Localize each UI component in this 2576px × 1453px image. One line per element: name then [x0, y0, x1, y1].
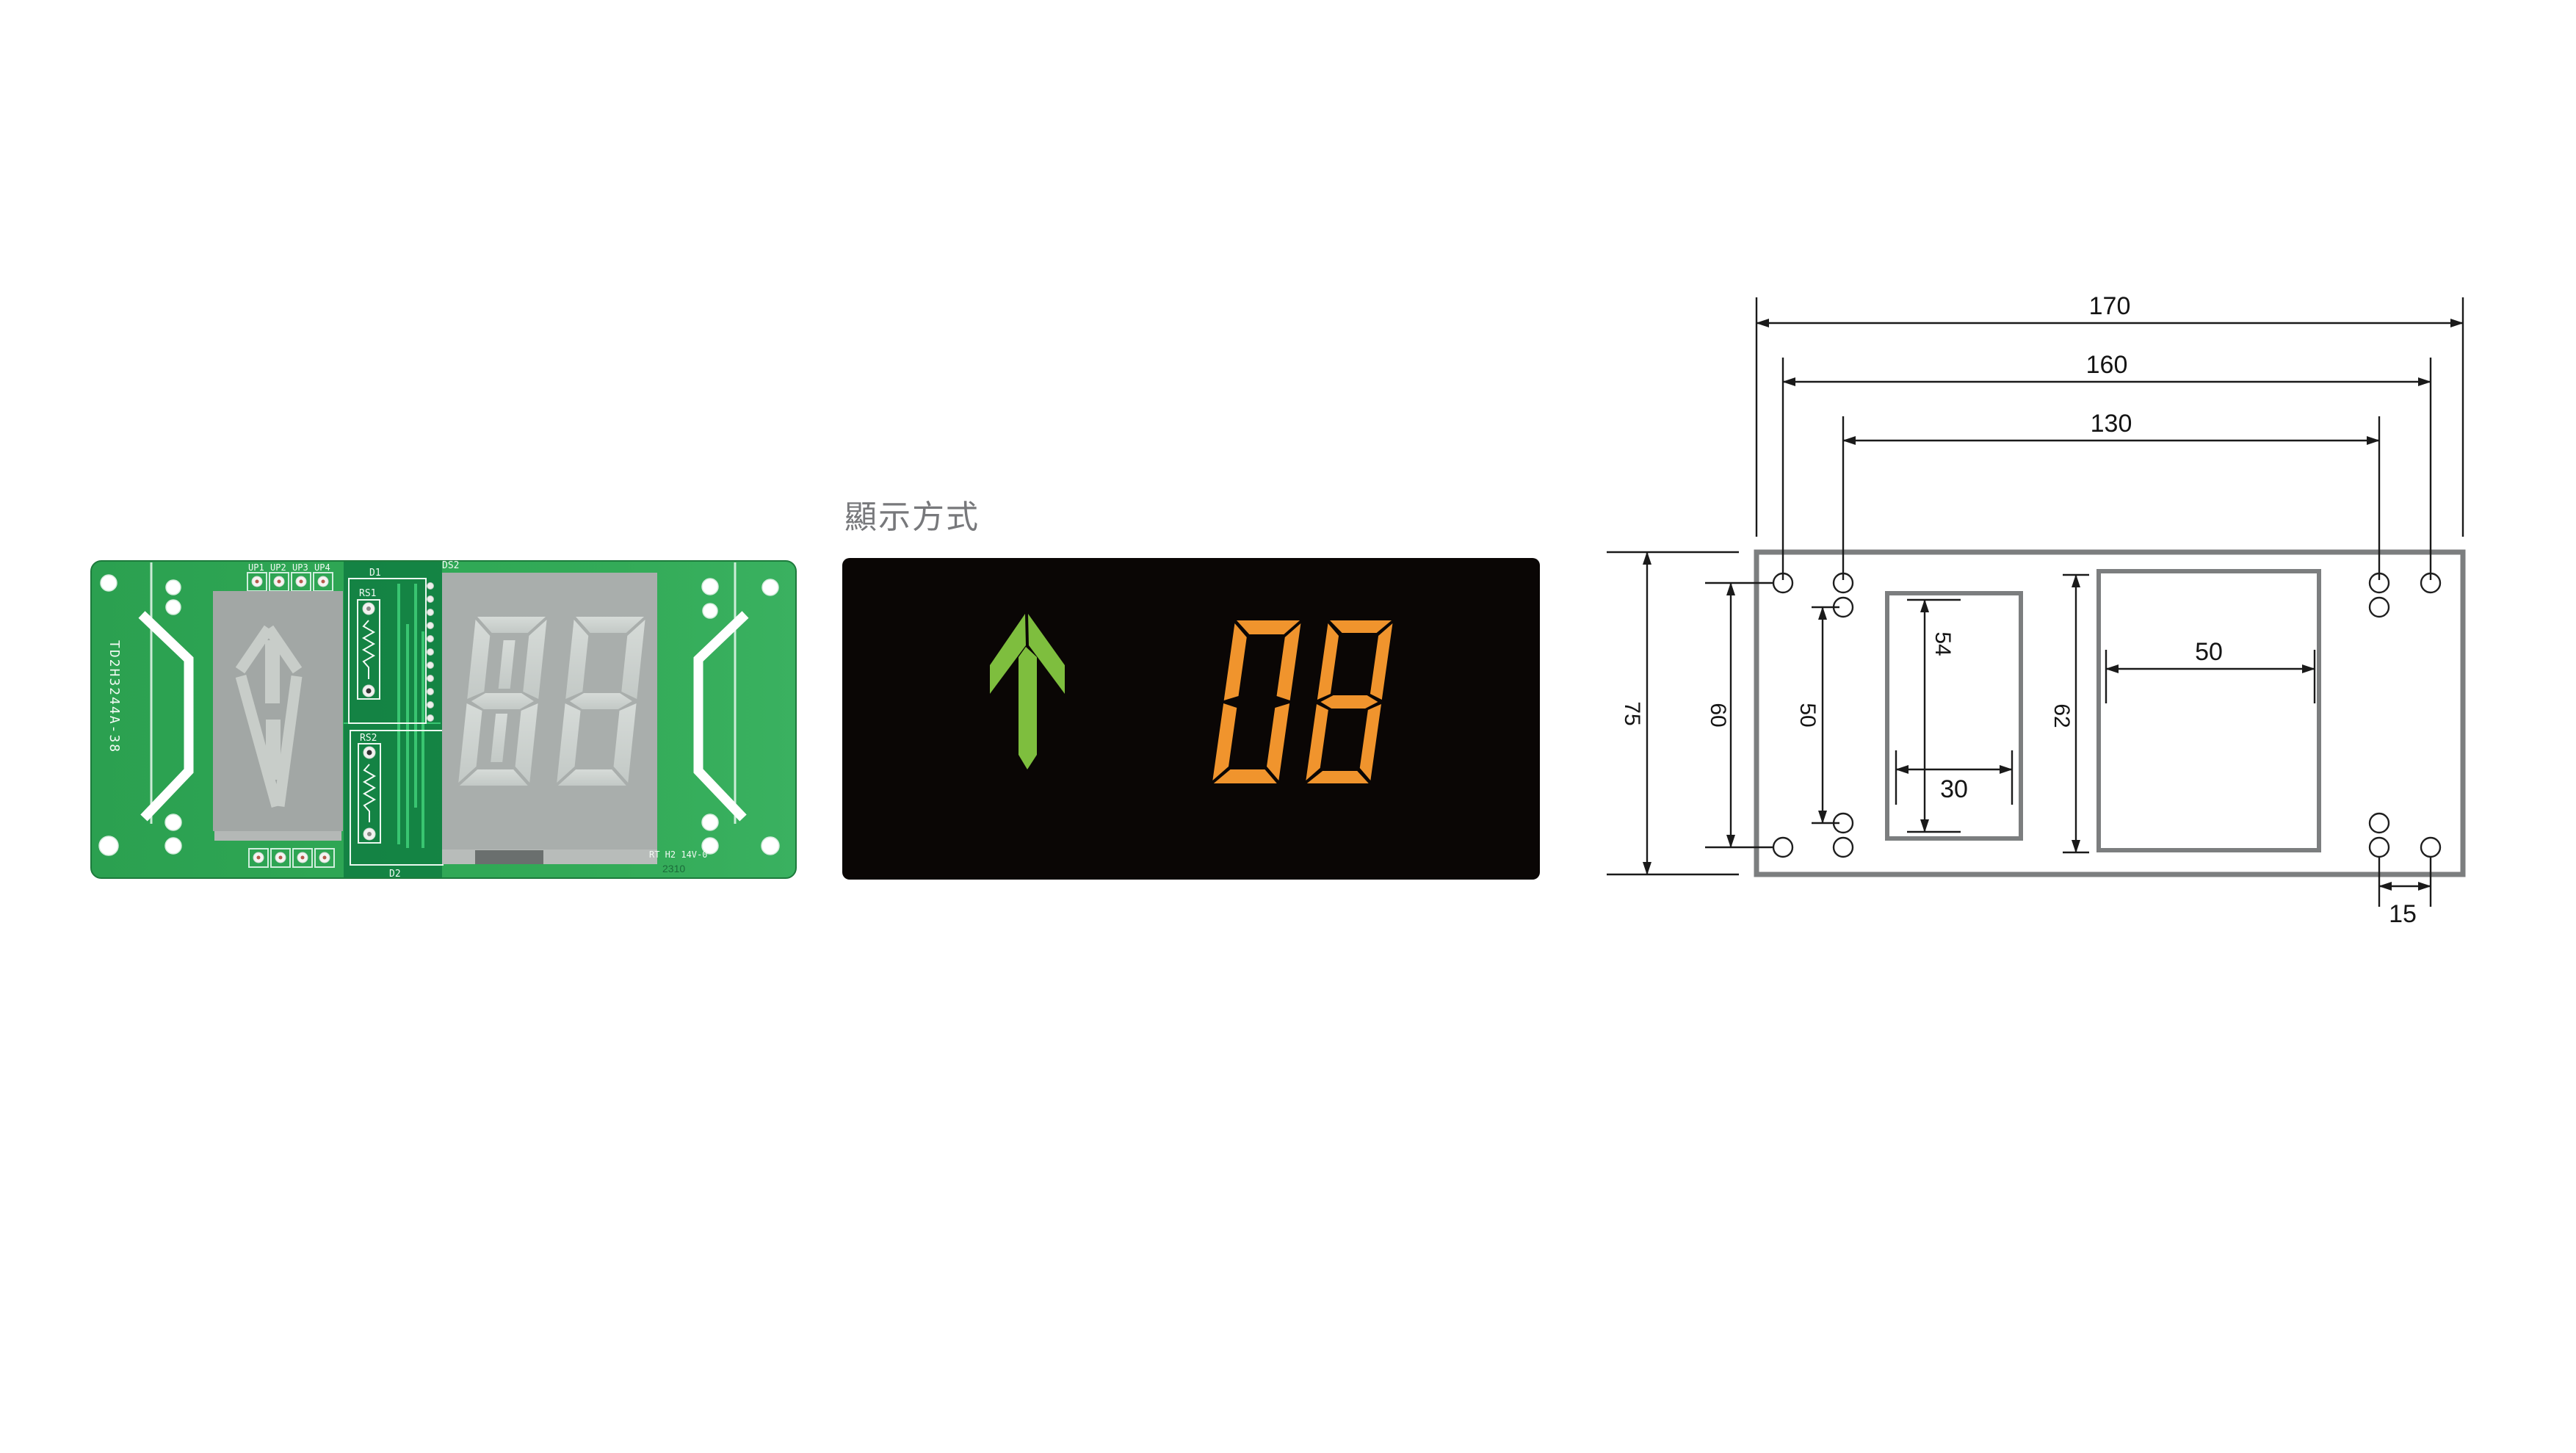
hole — [2370, 598, 2389, 617]
rs2-label: RS2 — [360, 733, 377, 744]
dim-15: 15 — [2389, 900, 2417, 928]
mounting-hole — [165, 814, 181, 830]
up3-label: UP3 — [292, 562, 308, 573]
dim-62: 62 — [2049, 703, 2074, 728]
dim-160: 160 — [2086, 351, 2128, 379]
hole — [2421, 838, 2440, 857]
d2-label: D2 — [389, 869, 401, 879]
display-panel — [842, 558, 1540, 880]
dim-170: 170 — [2089, 292, 2131, 320]
mounting-hole — [702, 814, 718, 830]
dim-75: 75 — [1620, 701, 1644, 725]
display-background — [842, 558, 1540, 880]
hole — [1773, 838, 1792, 857]
section-title: 顯示方式 — [844, 490, 980, 537]
pcb-photo: TD2H3244A-38 UP1 UP2 UP3 UP4 — [90, 560, 797, 879]
dim-50-rows: 50 — [1795, 703, 1820, 727]
product-spec-sheet: TD2H3244A-38 UP1 UP2 UP3 UP4 — [0, 0, 2576, 1453]
dim-60: 60 — [1706, 703, 1730, 727]
dimension-drawing: 170 160 130 75 60 50 54 30 62 50 15 — [1601, 272, 2515, 947]
hole — [1834, 838, 1853, 857]
pcb-part-number: TD2H3244A-38 — [106, 640, 122, 753]
pcb-date-code: 2310 — [662, 863, 685, 874]
dim-54: 54 — [1931, 631, 1955, 656]
dim-30: 30 — [1940, 775, 1968, 803]
up2-label: UP2 — [270, 562, 286, 573]
rs1-label: RS1 — [359, 588, 376, 599]
mounting-hole — [762, 579, 778, 595]
pcb-marking: RT H2 14V-0 — [649, 849, 707, 860]
d1-label: D1 — [369, 568, 381, 579]
mounting-hole — [703, 604, 717, 618]
plate-outline — [1756, 552, 2463, 874]
mounting-hole — [101, 575, 117, 591]
mounting-hole — [761, 837, 779, 855]
dim-50-window: 50 — [2195, 638, 2223, 666]
hole — [2370, 814, 2389, 833]
mounting-hole — [166, 580, 181, 595]
mounting-hole — [165, 838, 181, 854]
dim-130: 130 — [2091, 410, 2132, 438]
up1-label: UP1 — [248, 562, 264, 573]
hole — [2370, 838, 2389, 857]
mounting-hole — [702, 579, 718, 595]
arrow-led-module — [213, 591, 343, 841]
digit-led-module — [442, 573, 657, 864]
mounting-hole — [99, 836, 118, 855]
mounting-hole — [166, 600, 181, 615]
up4-label: UP4 — [314, 562, 330, 573]
ds2-label: DS2 — [442, 560, 459, 571]
